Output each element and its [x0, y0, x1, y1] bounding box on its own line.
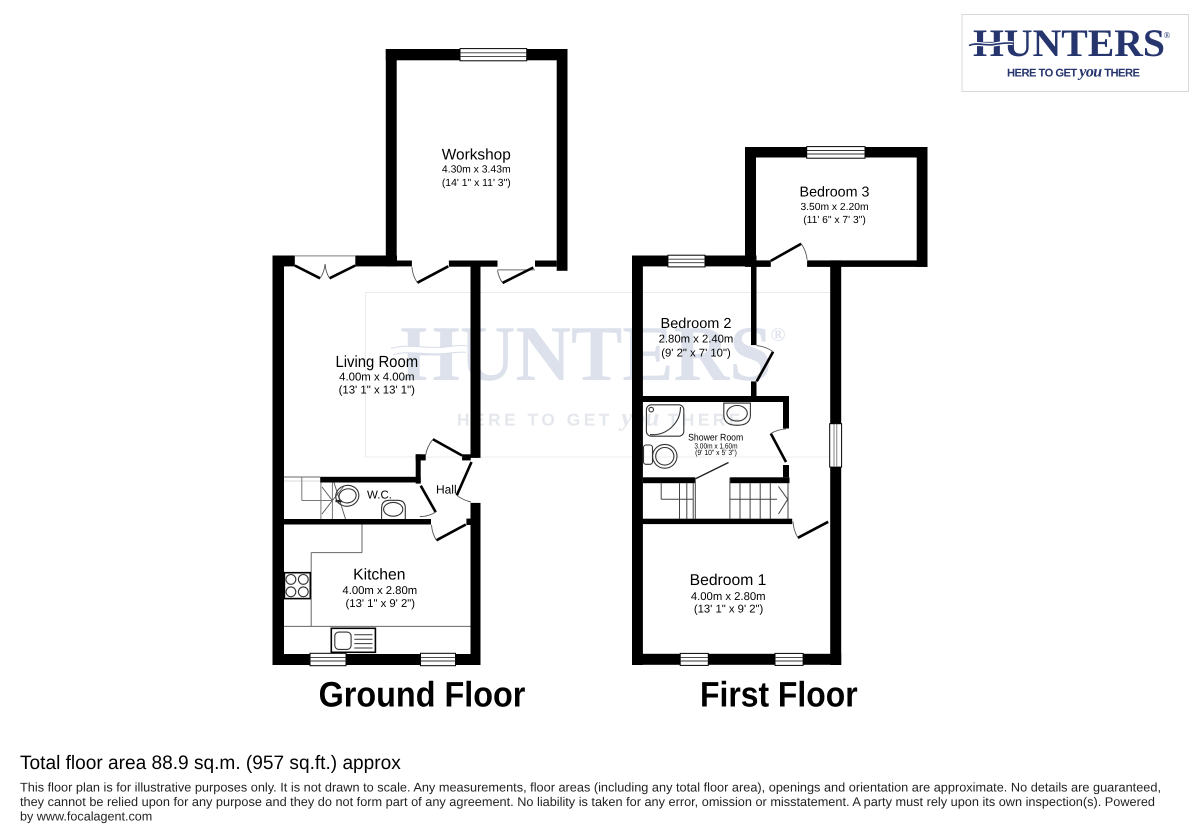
- svg-text:First Floor: First Floor: [700, 675, 858, 715]
- svg-text:(9' 2" x 7' 10"): (9' 2" x 7' 10"): [661, 348, 731, 360]
- svg-text:Kitchen: Kitchen: [353, 566, 405, 583]
- svg-text:(11' 6" x 7' 3"): (11' 6" x 7' 3"): [803, 215, 866, 226]
- svg-text:This floor plan is for illustr: This floor plan is for illustrative purp…: [20, 781, 1161, 795]
- svg-text:by www.focalagent.com: by www.focalagent.com: [20, 809, 152, 823]
- svg-text:Bedroom 1: Bedroom 1: [690, 572, 767, 589]
- svg-text:(13' 1" x 9' 2"): (13' 1" x 9' 2"): [346, 598, 416, 610]
- svg-text:4.30m x 3.43m: 4.30m x 3.43m: [442, 165, 511, 176]
- svg-text:®: ®: [771, 324, 786, 346]
- svg-text:(14' 1" x 11' 3"): (14' 1" x 11' 3"): [442, 178, 511, 189]
- svg-text:2.80m x 2.40m: 2.80m x 2.40m: [659, 334, 734, 346]
- svg-text:®: ®: [1164, 30, 1171, 40]
- svg-text:4.00m x 2.80m: 4.00m x 2.80m: [691, 591, 766, 603]
- svg-text:Ground Floor: Ground Floor: [319, 675, 526, 715]
- svg-text:Total floor area 88.9 sq.m. (9: Total floor area 88.9 sq.m. (957 sq.ft.)…: [20, 752, 401, 774]
- svg-text:(13' 1" x 9' 2"): (13' 1" x 9' 2"): [694, 604, 764, 616]
- svg-text:they cannot be relied upon for: they cannot be relied upon for any purpo…: [20, 795, 1155, 809]
- svg-text:Living Room: Living Room: [335, 353, 418, 371]
- svg-text:4.00m x 4.00m: 4.00m x 4.00m: [339, 371, 414, 383]
- svg-text:Bedroom 2: Bedroom 2: [661, 316, 732, 332]
- svg-text:3.50m x 2.20m: 3.50m x 2.20m: [800, 202, 868, 213]
- svg-text:Workshop: Workshop: [442, 147, 511, 164]
- svg-text:W.C.: W.C.: [367, 489, 392, 501]
- svg-text:4.00m x 2.80m: 4.00m x 2.80m: [342, 585, 417, 597]
- svg-text:(9' 10" x 5' 3"): (9' 10" x 5' 3"): [695, 448, 737, 457]
- svg-text:Hall: Hall: [436, 482, 457, 496]
- svg-text:(13' 1" x 13' 1"): (13' 1" x 13' 1"): [339, 385, 416, 397]
- svg-text:Bedroom 3: Bedroom 3: [800, 184, 870, 200]
